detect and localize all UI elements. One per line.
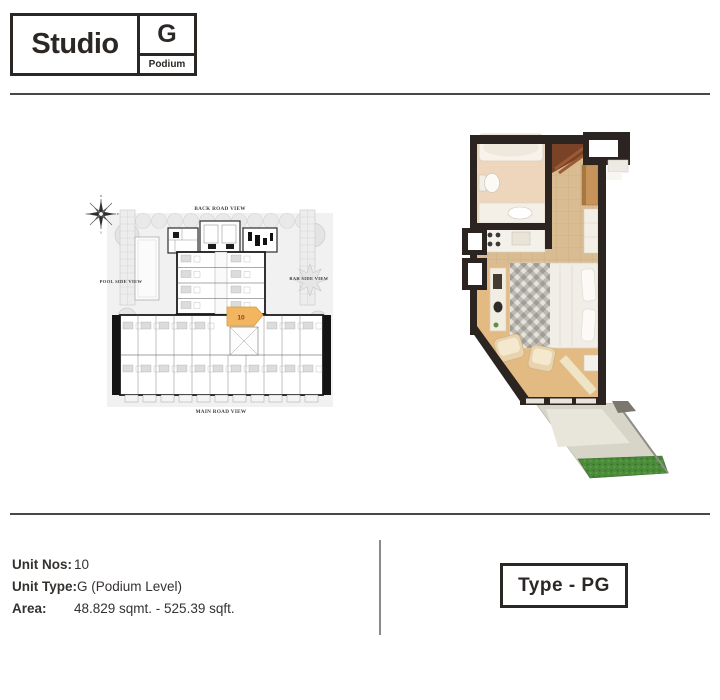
compass-north: N <box>100 195 103 198</box>
bottom-rule <box>10 513 710 515</box>
area-row: Area: 48.829 sqmt. - 525.39 sqft. <box>12 598 235 620</box>
armchair <box>527 344 556 373</box>
service-shafts <box>462 228 487 290</box>
compass-west: W <box>85 212 86 216</box>
highlighted-unit-number: 10 <box>237 315 245 322</box>
pillow <box>581 309 596 342</box>
top-rule <box>10 93 710 95</box>
grass-strip <box>578 456 668 478</box>
unit-category-title: Studio <box>13 16 137 73</box>
type-badge-label: Type - PG <box>518 575 610 597</box>
toilet <box>479 174 500 193</box>
unit-level-label: Podium <box>140 53 194 73</box>
bar-side-view-label: BAR SIDE VIEW <box>289 276 328 281</box>
area-value: 48.829 sqmt. - 525.39 sqft. <box>74 598 235 620</box>
porch-row <box>125 395 318 402</box>
console-desk <box>490 268 506 331</box>
basin <box>508 207 532 219</box>
unit-type-row: Unit Type: G (Podium Level) <box>12 576 235 598</box>
unit-type-value: G (Podium Level) <box>77 576 182 598</box>
site-key-plan: 10 N E S W BACK ROAD VIEW MAIN ROAD VIEW… <box>85 195 350 425</box>
back-road-view-label: BACK ROAD VIEW <box>194 206 246 212</box>
unit-floor-plan <box>460 115 695 500</box>
unit-letter: G <box>140 16 194 53</box>
kitchenette <box>477 228 545 252</box>
terrace <box>537 401 668 478</box>
unit-letter-cell: G Podium <box>137 16 194 73</box>
main-road-view-label: MAIN ROAD VIEW <box>196 409 247 415</box>
unit-nos-row: Unit Nos: 10 <box>12 554 235 576</box>
brochure-page: Studio G Podium <box>0 0 720 700</box>
compass-south: S <box>100 230 102 234</box>
pillow <box>581 269 596 302</box>
compass-east: E <box>117 212 119 216</box>
pool-side-view-label: POOL SIDE VIEW <box>100 279 143 284</box>
kitchen-counter <box>477 228 545 252</box>
nightstand <box>584 355 599 371</box>
shelf-unit <box>584 209 598 253</box>
type-badge: Type - PG <box>500 563 628 608</box>
unit-type-label: Unit Type: <box>12 576 77 598</box>
pool <box>135 237 159 300</box>
window-band <box>526 399 596 404</box>
unit-nos-label: Unit Nos: <box>12 554 74 576</box>
unit-type-header: Studio G Podium <box>10 13 197 76</box>
unit-nos-value: 10 <box>74 554 89 576</box>
area-label: Area: <box>12 598 74 620</box>
unit-details: Unit Nos: 10 Unit Type: G (Podium Level)… <box>12 554 235 620</box>
vertical-divider <box>379 540 381 635</box>
